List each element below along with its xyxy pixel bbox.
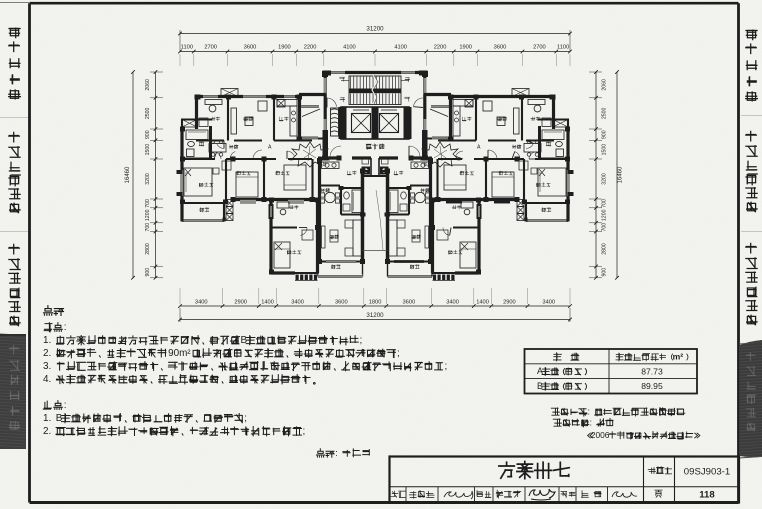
svg-text:90m²: 90m² bbox=[168, 348, 191, 359]
svg-text:1.: 1. bbox=[43, 413, 51, 424]
svg-text:A: A bbox=[477, 145, 481, 151]
svg-text:A: A bbox=[268, 145, 272, 151]
svg-text:;: ; bbox=[445, 361, 448, 372]
svg-text:1.: 1. bbox=[43, 335, 51, 346]
svg-text:B: B bbox=[241, 335, 248, 346]
svg-text:2.: 2. bbox=[43, 348, 51, 359]
svg-text:;: ; bbox=[303, 426, 306, 437]
svg-text::: : bbox=[64, 322, 67, 333]
svg-text:B: B bbox=[424, 162, 428, 168]
svg-text:2006: 2006 bbox=[591, 430, 610, 440]
svg-text:3.: 3. bbox=[43, 361, 51, 372]
svg-text:;: ; bbox=[360, 335, 363, 346]
svg-text:B: B bbox=[323, 162, 327, 168]
svg-text:2.: 2. bbox=[43, 426, 51, 437]
svg-text::: : bbox=[588, 407, 591, 417]
svg-text::: : bbox=[335, 448, 338, 459]
svg-text::: : bbox=[590, 418, 593, 428]
svg-text:;: ; bbox=[397, 348, 400, 359]
svg-text:B: B bbox=[56, 413, 63, 424]
svg-text::: : bbox=[64, 400, 67, 411]
svg-text:m²: m² bbox=[673, 352, 684, 362]
svg-text:;: ; bbox=[244, 413, 247, 424]
svg-text:4.: 4. bbox=[43, 374, 51, 385]
svg-text:B: B bbox=[537, 381, 543, 391]
svg-text:A: A bbox=[537, 366, 543, 376]
